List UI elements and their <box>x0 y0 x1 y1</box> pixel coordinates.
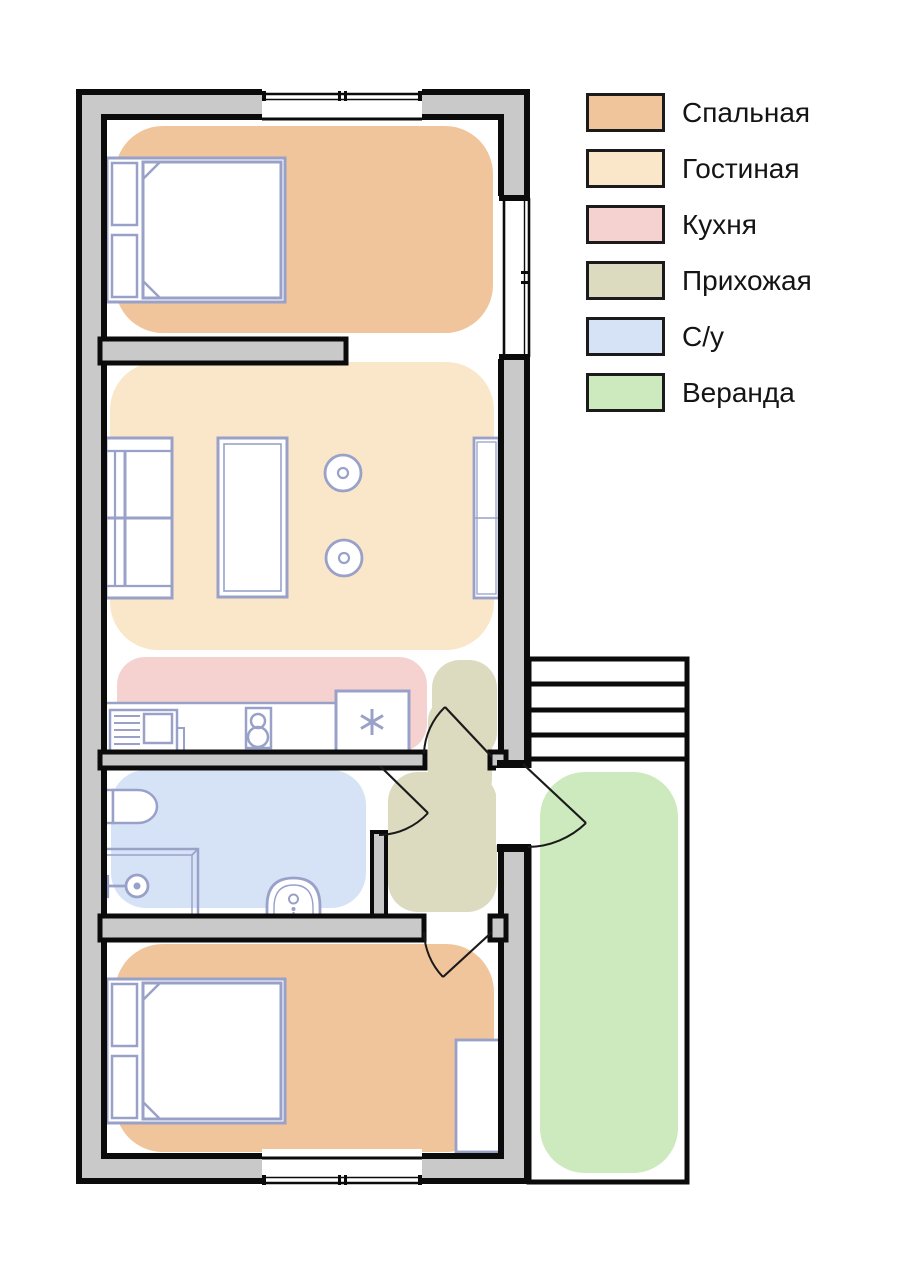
window-right <box>497 195 532 360</box>
legend-swatch-veranda <box>586 373 665 412</box>
legend-label-living-room: Гостиная <box>682 155 800 183</box>
legend-item-living-room: Гостиная <box>586 149 812 188</box>
window-top <box>262 86 422 124</box>
room-fill-veranda <box>540 772 678 1173</box>
legend: Спальная Гостиная Кухня Прихожая С/у Вер… <box>586 93 812 412</box>
wardrobe <box>456 1040 500 1152</box>
legend-item-kitchen: Кухня <box>586 205 812 244</box>
bed-top-bedroom <box>107 158 285 302</box>
sofa <box>106 438 172 598</box>
legend-label-kitchen: Кухня <box>682 211 757 239</box>
legend-swatch-living-room <box>586 149 665 188</box>
legend-item-hallway: Прихожая <box>586 261 812 300</box>
window-bottom <box>262 1149 422 1187</box>
legend-item-bathroom: С/у <box>586 317 812 356</box>
legend-swatch-bedroom <box>586 93 665 132</box>
legend-label-hallway: Прихожая <box>682 267 812 295</box>
legend-item-bedroom: Спальная <box>586 93 812 132</box>
legend-item-veranda: Веранда <box>586 373 812 412</box>
entrance-opening <box>496 760 532 852</box>
fridge <box>336 691 409 752</box>
stool <box>326 540 362 576</box>
legend-swatch-bathroom <box>586 317 665 356</box>
entrance-stairs <box>529 659 687 759</box>
floor-plan-page: Спальная Гостиная Кухня Прихожая С/у Вер… <box>0 0 905 1280</box>
legend-label-bathroom: С/у <box>682 323 724 351</box>
legend-label-bedroom: Спальная <box>682 99 810 127</box>
legend-swatch-kitchen <box>586 205 665 244</box>
dining-table <box>218 438 287 597</box>
legend-swatch-hallway <box>586 261 665 300</box>
toilet <box>104 790 157 823</box>
bed-bottom-bedroom <box>107 979 285 1123</box>
stove <box>110 710 184 751</box>
cabinet <box>474 438 499 598</box>
stool <box>325 455 361 491</box>
legend-label-veranda: Веранда <box>682 379 795 407</box>
